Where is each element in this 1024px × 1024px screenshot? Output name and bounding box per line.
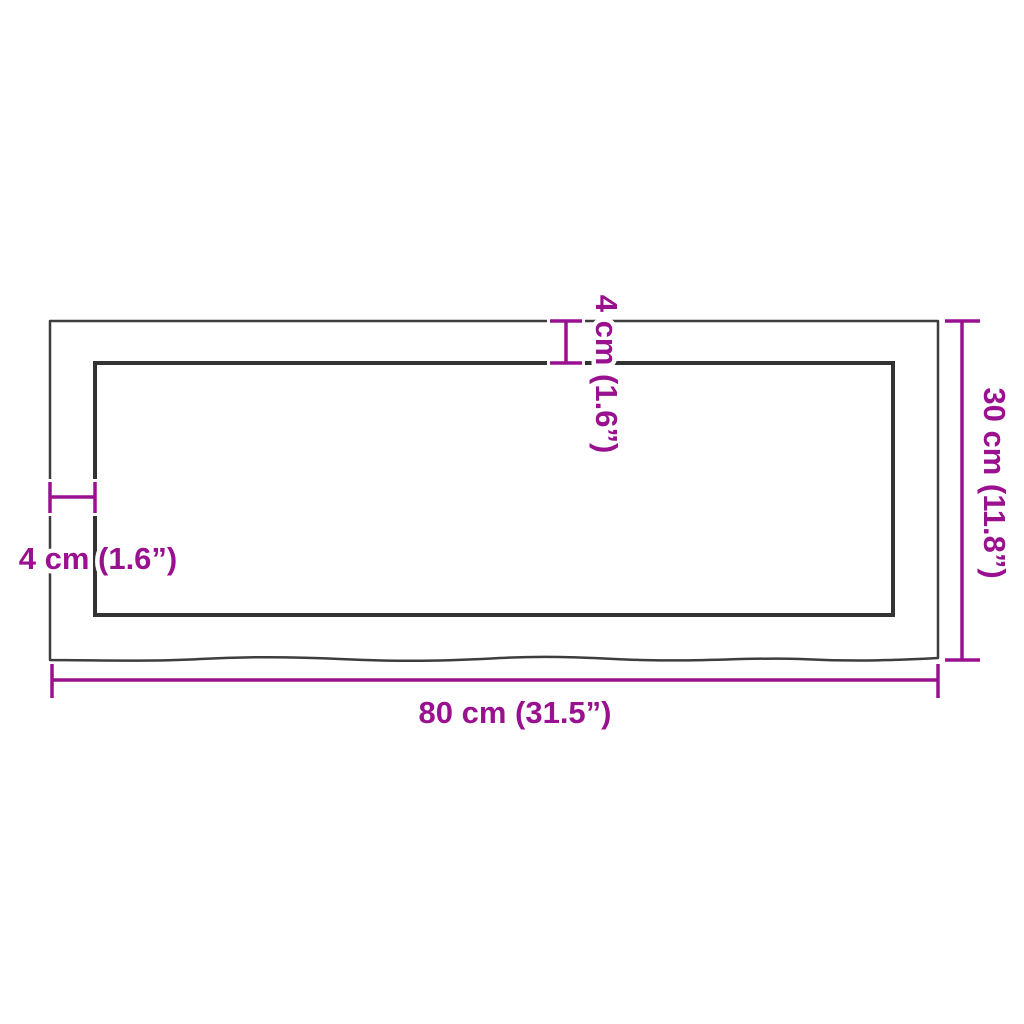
outer-board-edge: [50, 321, 938, 661]
diagram-svg: 80 cm (31.5”) 30 cm (11.8”) 4 cm (1.6”) …: [0, 0, 1024, 1024]
inner-surface-edge: [95, 363, 893, 615]
height-dimension: [945, 321, 980, 660]
panel-outline: [50, 321, 938, 661]
top-thickness-label: 4 cm (1.6”): [589, 295, 624, 454]
width-dimension: [52, 664, 938, 698]
left-thickness-label: 4 cm (1.6”): [19, 541, 178, 576]
left-thickness-marker: [44, 479, 101, 516]
top-thickness-marker: [547, 315, 585, 369]
dimension-diagram: 80 cm (31.5”) 30 cm (11.8”) 4 cm (1.6”) …: [0, 0, 1024, 1024]
height-dimension-label: 30 cm (11.8”): [977, 387, 1012, 578]
width-dimension-label: 80 cm (31.5”): [419, 695, 612, 730]
